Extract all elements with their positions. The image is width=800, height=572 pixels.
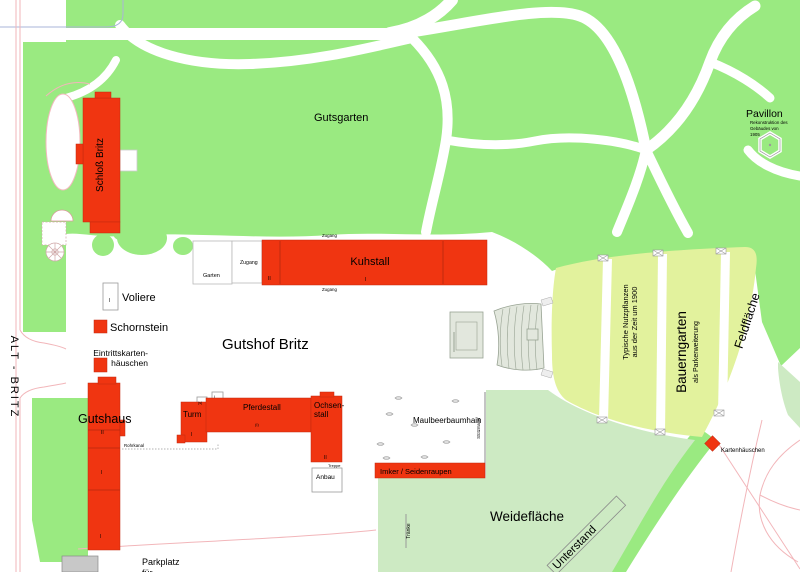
tree-icon xyxy=(443,441,450,444)
parkplatz-label-2: für xyxy=(142,568,153,572)
tree-icon xyxy=(377,443,384,446)
tick: II xyxy=(324,455,327,461)
stage xyxy=(450,312,483,358)
gutsgarten-label: Gutsgarten xyxy=(314,112,368,124)
voliere-label: Voliere xyxy=(122,292,156,304)
maulbeerbaumhain-label: Maulbeerbaumhain xyxy=(413,416,482,425)
schornstein-square xyxy=(94,320,107,333)
weideflaeche-label: Weidefläche xyxy=(490,509,564,524)
garten-label: Garten xyxy=(203,273,220,279)
booth xyxy=(527,329,538,340)
rohrkanal-label: Rohrkanal xyxy=(124,443,144,448)
anbau-label: Anbau xyxy=(316,474,335,481)
tick: II xyxy=(268,276,271,282)
courtyard-dashed xyxy=(42,222,66,245)
gutshof-britz-label: Gutshof Britz xyxy=(222,336,309,353)
tree-icon xyxy=(421,456,428,459)
gate-icon xyxy=(653,250,663,256)
pferdestall-label: Pferdestall xyxy=(243,403,281,412)
bauerngarten-label: Bauerngarten xyxy=(674,311,689,393)
street-label-alt-britz: ALT - BRITZ xyxy=(8,336,20,419)
gate-icon xyxy=(714,410,724,416)
pavillon-sub3: 1905 xyxy=(750,132,760,137)
schloss-label: Schloß Britz xyxy=(95,138,106,192)
site-map: ALT - BRITZ Gutsgarten Pavillon Rekonstr… xyxy=(0,0,800,572)
gate-icon xyxy=(597,417,607,423)
meadow-right-wedge xyxy=(778,362,800,428)
tick: I xyxy=(365,277,366,283)
tick: I xyxy=(100,534,101,540)
garden-blob xyxy=(173,237,193,255)
schornstein-label: Schornstein xyxy=(110,322,168,334)
ochsenstall-label-1: Ochsen- xyxy=(314,401,345,410)
stuetzmauer-label: Stützmauer xyxy=(476,417,481,439)
tick: (s) xyxy=(198,401,202,405)
tick: II xyxy=(101,430,104,436)
tick: I xyxy=(214,394,215,399)
driveway-oval xyxy=(46,94,80,190)
amphitheatre xyxy=(450,297,553,378)
tick: I xyxy=(191,432,192,438)
voliere-box xyxy=(103,283,118,310)
eintritt-label-1: Eintrittskarten- xyxy=(93,348,148,358)
tree-icons xyxy=(377,397,459,460)
imker-label: Imker / Seidenraupen xyxy=(380,467,452,476)
tree-icon xyxy=(395,397,402,400)
gate-icon xyxy=(598,255,608,261)
pavillon-sub1: Rekonstruktion des xyxy=(750,120,788,125)
garden-blob xyxy=(117,221,167,255)
treppe-label: Treppe xyxy=(328,463,341,468)
garden-blob xyxy=(92,234,114,256)
kuhstall-label: Kuhstall xyxy=(350,256,389,268)
nutzpflanzen-label-2: aus der Zeit um 1900 xyxy=(630,287,639,358)
gutshaus-label: Gutshaus xyxy=(78,412,132,426)
ochsenstall-label-2: stall xyxy=(314,410,328,419)
tree-icon xyxy=(386,413,393,416)
parkplatz-label-1: Parkplatz xyxy=(142,557,180,567)
pavillon-label: Pavillon xyxy=(746,108,783,120)
zugang-top-label: Zugang xyxy=(322,233,337,238)
eintritt-label-2: häuschen xyxy=(111,358,148,368)
eintrittskarten-square xyxy=(94,358,107,372)
zugang-box-label: Zugang xyxy=(240,260,258,266)
kartenhaeuschen-label: Kartenhäuschen xyxy=(721,448,765,454)
turm-label: Turm xyxy=(183,410,202,419)
tick: (I) xyxy=(255,422,259,427)
fountain-icon xyxy=(46,243,64,261)
tick: I xyxy=(101,470,102,476)
nutzpflanzen-label-1: Typische Nutzpflanzen xyxy=(621,284,630,359)
gutshaus-building xyxy=(88,377,125,550)
traenke-label: Tränke xyxy=(406,523,412,539)
gray-building xyxy=(62,556,98,572)
gate-icon xyxy=(716,248,726,254)
zugang-bottom-label: Zugang xyxy=(322,287,337,292)
tree-icon xyxy=(452,400,459,403)
tick: I xyxy=(109,298,110,304)
gate-icon xyxy=(655,429,665,435)
tree-icon xyxy=(383,457,390,460)
schloss-notch xyxy=(120,150,137,171)
pavillon-sub2: Gebäudes von xyxy=(750,126,779,131)
bauerngarten-sub-label: als Parkerweiterung xyxy=(693,321,700,383)
